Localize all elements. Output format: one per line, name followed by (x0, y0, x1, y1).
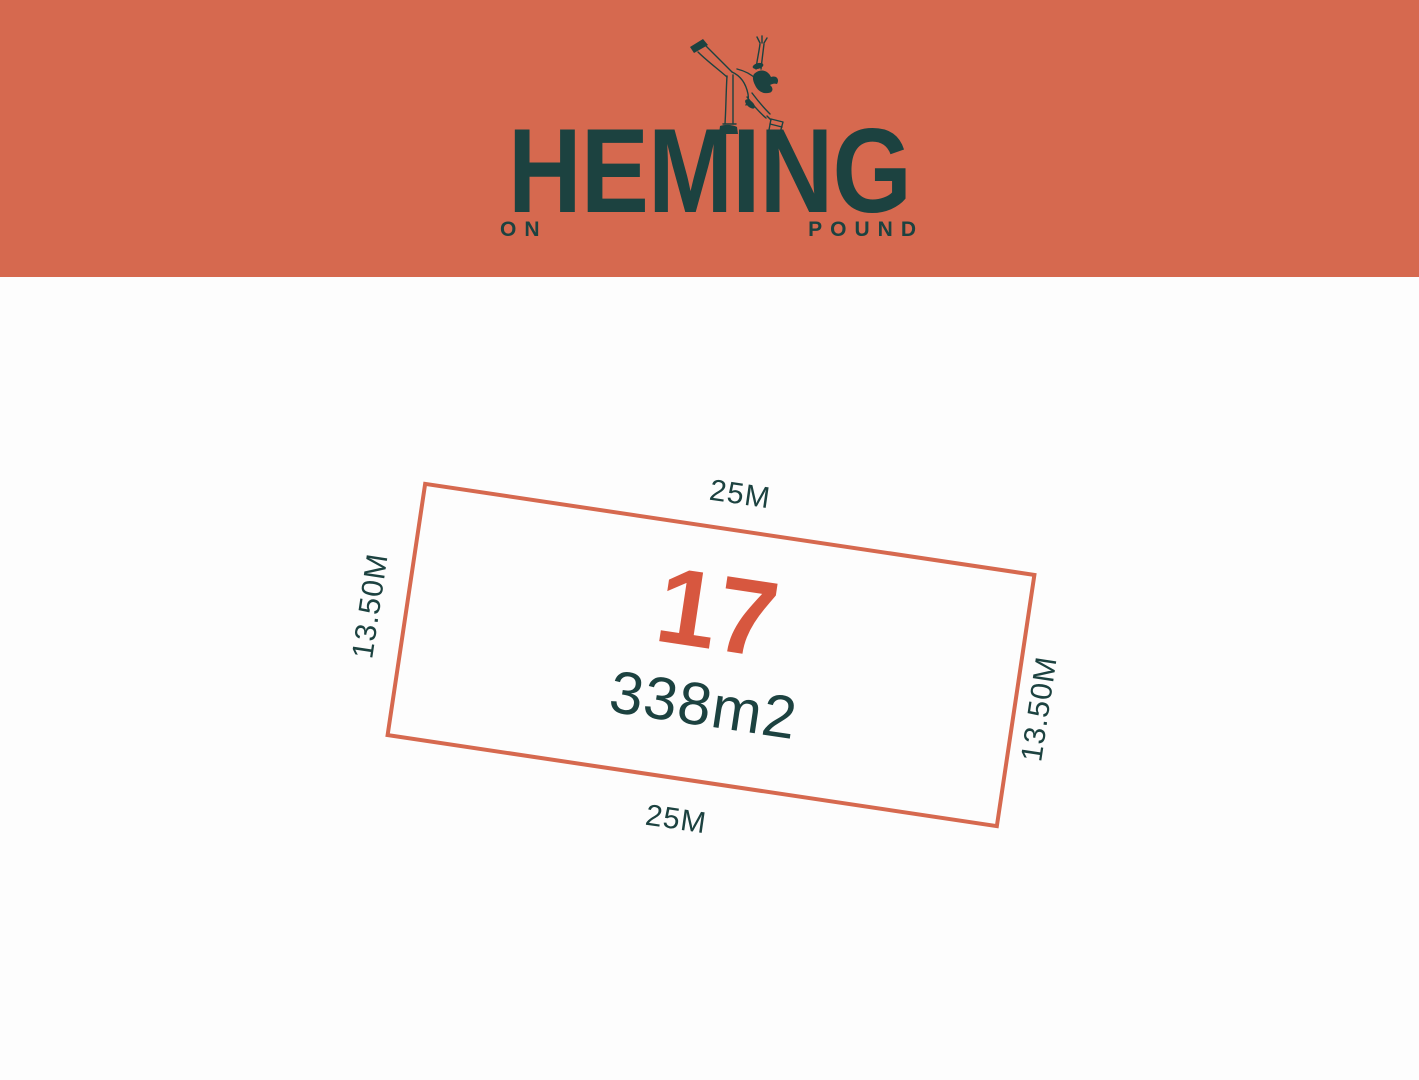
dimension-label-left: 13.50M (348, 551, 393, 660)
brand-sub-left: ON (500, 219, 548, 240)
lot-plan: 17 338m2 25M 25M 13.50M 13.50M (0, 277, 1419, 1080)
page-canvas: HEMING ON POUND (0, 0, 1419, 1080)
lot-boundary: 17 338m2 (385, 482, 1036, 829)
brand-sub-right: POUND (808, 219, 924, 240)
brand-subtitle-row: ON POUND (500, 219, 924, 240)
dimension-label-bottom: 25M (643, 801, 708, 839)
high-kick-dancer-icon (675, 23, 805, 145)
header-band: HEMING ON POUND (0, 0, 1419, 277)
dimension-label-right: 13.50M (1017, 654, 1062, 763)
dimension-label-top: 25M (707, 476, 772, 514)
